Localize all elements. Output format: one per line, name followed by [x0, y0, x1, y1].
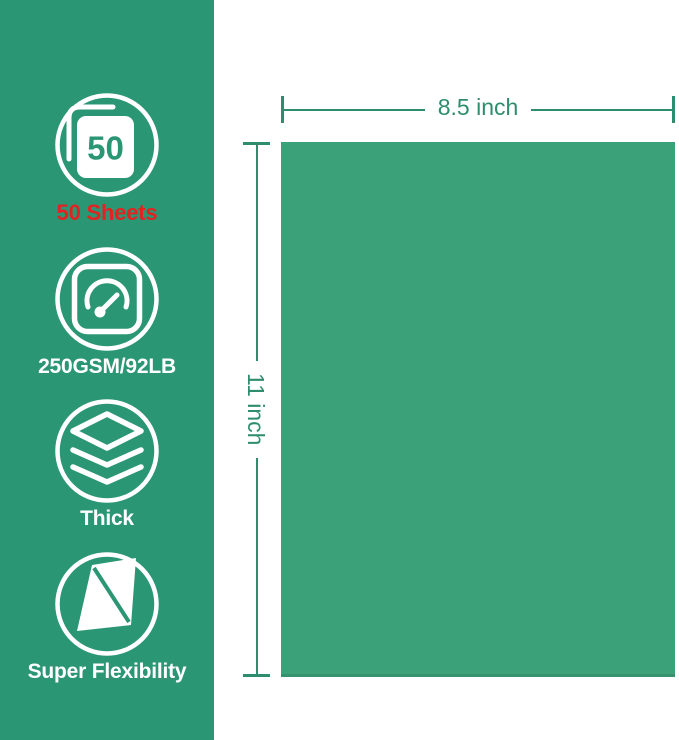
- height-dimension: 11 inch: [243, 142, 270, 677]
- layers-icon: [55, 399, 159, 503]
- feature-sheet-count-label: 50 Sheets: [57, 200, 158, 226]
- dimension-line: [256, 458, 258, 674]
- bent-paper-icon: [55, 552, 159, 656]
- dimension-line: [531, 109, 672, 111]
- dimension-tick-bottom: [243, 674, 270, 677]
- dimension-tick-right: [672, 96, 675, 123]
- feature-thickness: Thick: [0, 399, 214, 532]
- feature-paper-weight-label: 250GSM/92LB: [38, 354, 176, 380]
- feature-flexibility: Super Flexibility: [0, 552, 214, 685]
- dimension-line: [256, 145, 258, 361]
- feature-thickness-label: Thick: [80, 506, 134, 532]
- feature-flexibility-label: Super Flexibility: [28, 659, 187, 685]
- height-dimension-label: 11 inch: [242, 361, 269, 457]
- dimension-line: [284, 109, 425, 111]
- feature-sheet-count: 50 50 Sheets: [0, 93, 214, 226]
- paper-sheet: [281, 142, 675, 677]
- speedometer-icon: [55, 247, 159, 351]
- feature-paper-weight: 250GSM/92LB: [0, 247, 214, 380]
- width-dimension: 8.5 inch: [281, 96, 675, 123]
- features-sidebar: 50 50 Sheets 250GSM/92LB Thick: [0, 0, 214, 740]
- sheet-stack-50-icon: 50: [55, 93, 159, 197]
- width-dimension-label: 8.5 inch: [425, 94, 532, 121]
- sheet-count-number: 50: [87, 130, 124, 167]
- product-infographic: 50 50 Sheets 250GSM/92LB Thick: [0, 0, 679, 740]
